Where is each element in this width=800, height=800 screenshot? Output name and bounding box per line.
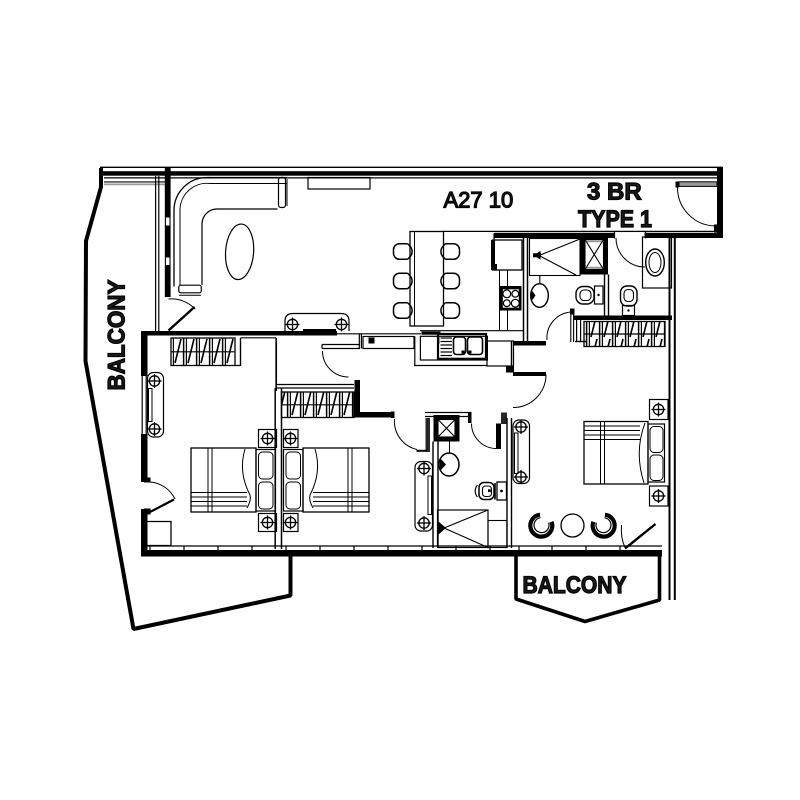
svg-text:BALCONY: BALCONY bbox=[523, 572, 627, 599]
svg-text:A27 10: A27 10 bbox=[444, 188, 514, 213]
svg-text:3 BR: 3 BR bbox=[587, 179, 642, 206]
svg-text:TYPE 1: TYPE 1 bbox=[578, 206, 652, 233]
svg-text:BALCONY: BALCONY bbox=[104, 280, 131, 391]
